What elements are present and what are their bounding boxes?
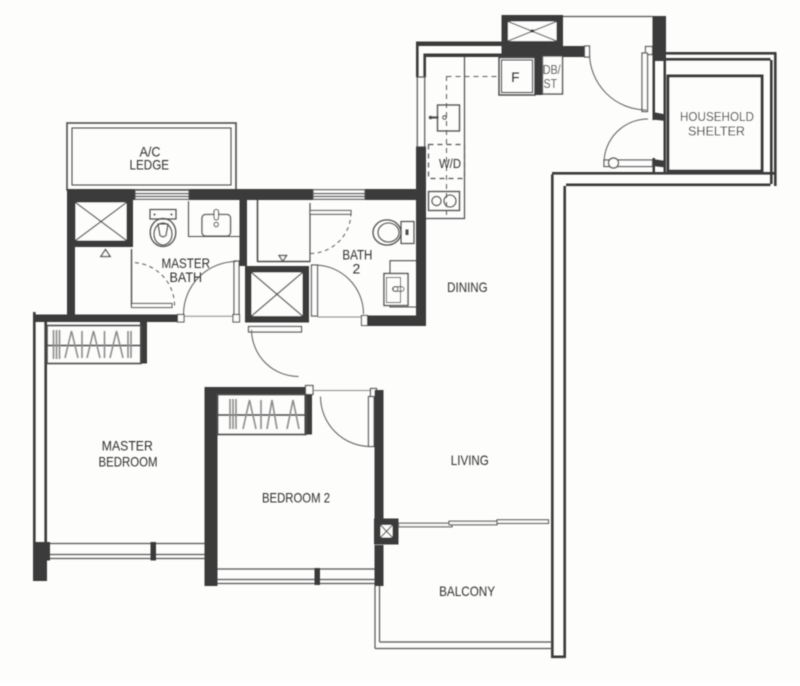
svg-text:SHELTER: SHELTER [688, 124, 745, 139]
svg-text:HOUSEHOLD: HOUSEHOLD [680, 109, 754, 124]
svg-text:2: 2 [353, 261, 361, 277]
svg-text:LIVING: LIVING [451, 452, 489, 468]
svg-text:BEDROOM: BEDROOM [99, 453, 158, 469]
svg-text:F: F [511, 70, 519, 85]
svg-text:BATH: BATH [170, 269, 203, 285]
svg-text:W/D: W/D [439, 156, 461, 171]
svg-text:BALCONY: BALCONY [439, 583, 496, 599]
svg-text:MASTER: MASTER [102, 438, 153, 454]
svg-text:ST: ST [544, 77, 558, 91]
svg-text:DINING: DINING [447, 279, 488, 295]
svg-text:DB/: DB/ [543, 63, 561, 77]
svg-text:LEDGE: LEDGE [130, 157, 170, 173]
svg-text:BEDROOM 2: BEDROOM 2 [262, 490, 330, 506]
